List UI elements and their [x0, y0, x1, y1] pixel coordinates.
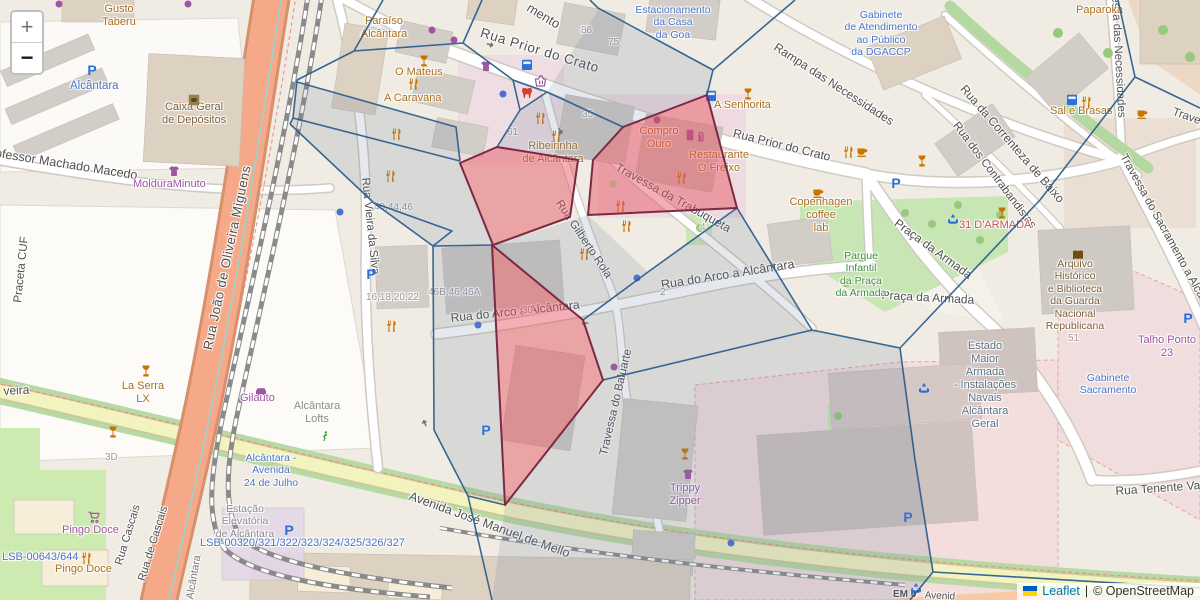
- voronoi-cell-fills: [290, 10, 933, 600]
- attribution-bar: Leaflet | © OpenStreetMap: [1017, 583, 1200, 600]
- leaflet-link[interactable]: Leaflet: [1042, 584, 1080, 598]
- zoom-in-button[interactable]: +: [12, 12, 42, 43]
- zoom-out-button[interactable]: −: [12, 43, 42, 73]
- ukraine-flag-icon: [1023, 586, 1037, 596]
- voronoi-overlay[interactable]: [0, 0, 1200, 600]
- map-canvas[interactable]: Rua Prior do CratoRua Prior do CratoRamp…: [0, 0, 1200, 600]
- zoom-control: + −: [10, 10, 44, 75]
- openstreetmap-link[interactable]: © OpenStreetMap: [1093, 584, 1194, 598]
- attribution-separator: |: [1085, 584, 1088, 598]
